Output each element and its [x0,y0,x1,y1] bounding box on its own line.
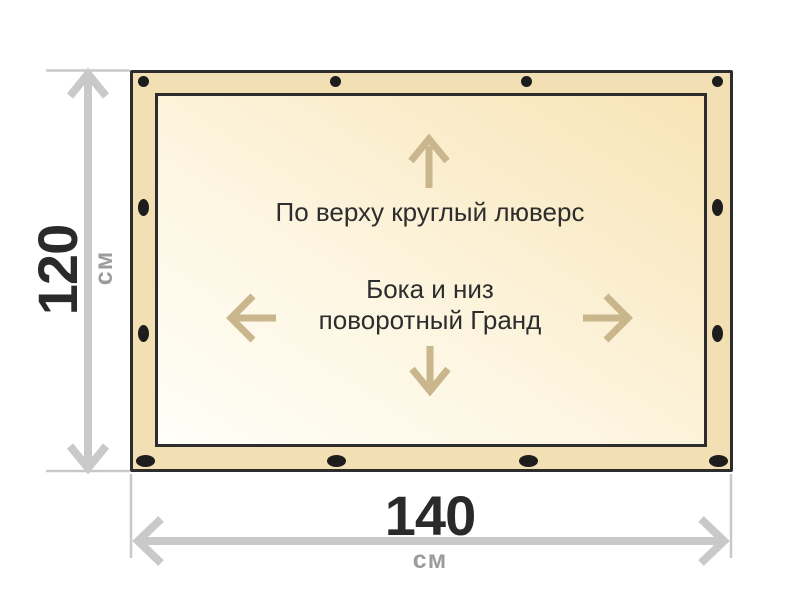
width-arrowhead-right-icon [701,519,724,563]
grommet-bottom-2 [327,455,346,467]
grommet-bottom-4 [709,455,728,467]
height-unit: см [89,228,119,308]
grommet-bottom-1 [136,455,155,467]
grommet-right-2 [712,325,723,342]
width-arrowhead-left-icon [138,519,161,563]
grommet-left-2 [138,325,149,342]
grommet-left-1 [138,199,149,216]
grommet-right-1 [712,199,723,216]
grommet-top-4 [712,76,723,87]
height-arrowhead-down-icon [70,446,106,468]
grommet-top-3 [521,76,532,87]
grommet-top-1 [138,76,149,87]
sides-bottom-note-line1: Бока и низ [180,274,680,305]
banner [130,70,733,472]
banner-print-area [155,93,707,447]
sides-bottom-note-line2: поворотный Гранд [180,305,680,336]
sides-bottom-note: Бока и низ поворотный Гранд [180,274,680,336]
width-value: 140 [330,486,530,546]
top-edge-note: По верху круглый люверс [180,197,680,228]
height-value: 120 [28,190,88,350]
height-arrowhead-up-icon [70,74,106,96]
grommet-top-2 [330,76,341,87]
grommet-bottom-3 [519,455,538,467]
diagram-canvas: По верху круглый люверс Бока и низ повор… [0,0,800,600]
width-unit: см [390,545,470,575]
